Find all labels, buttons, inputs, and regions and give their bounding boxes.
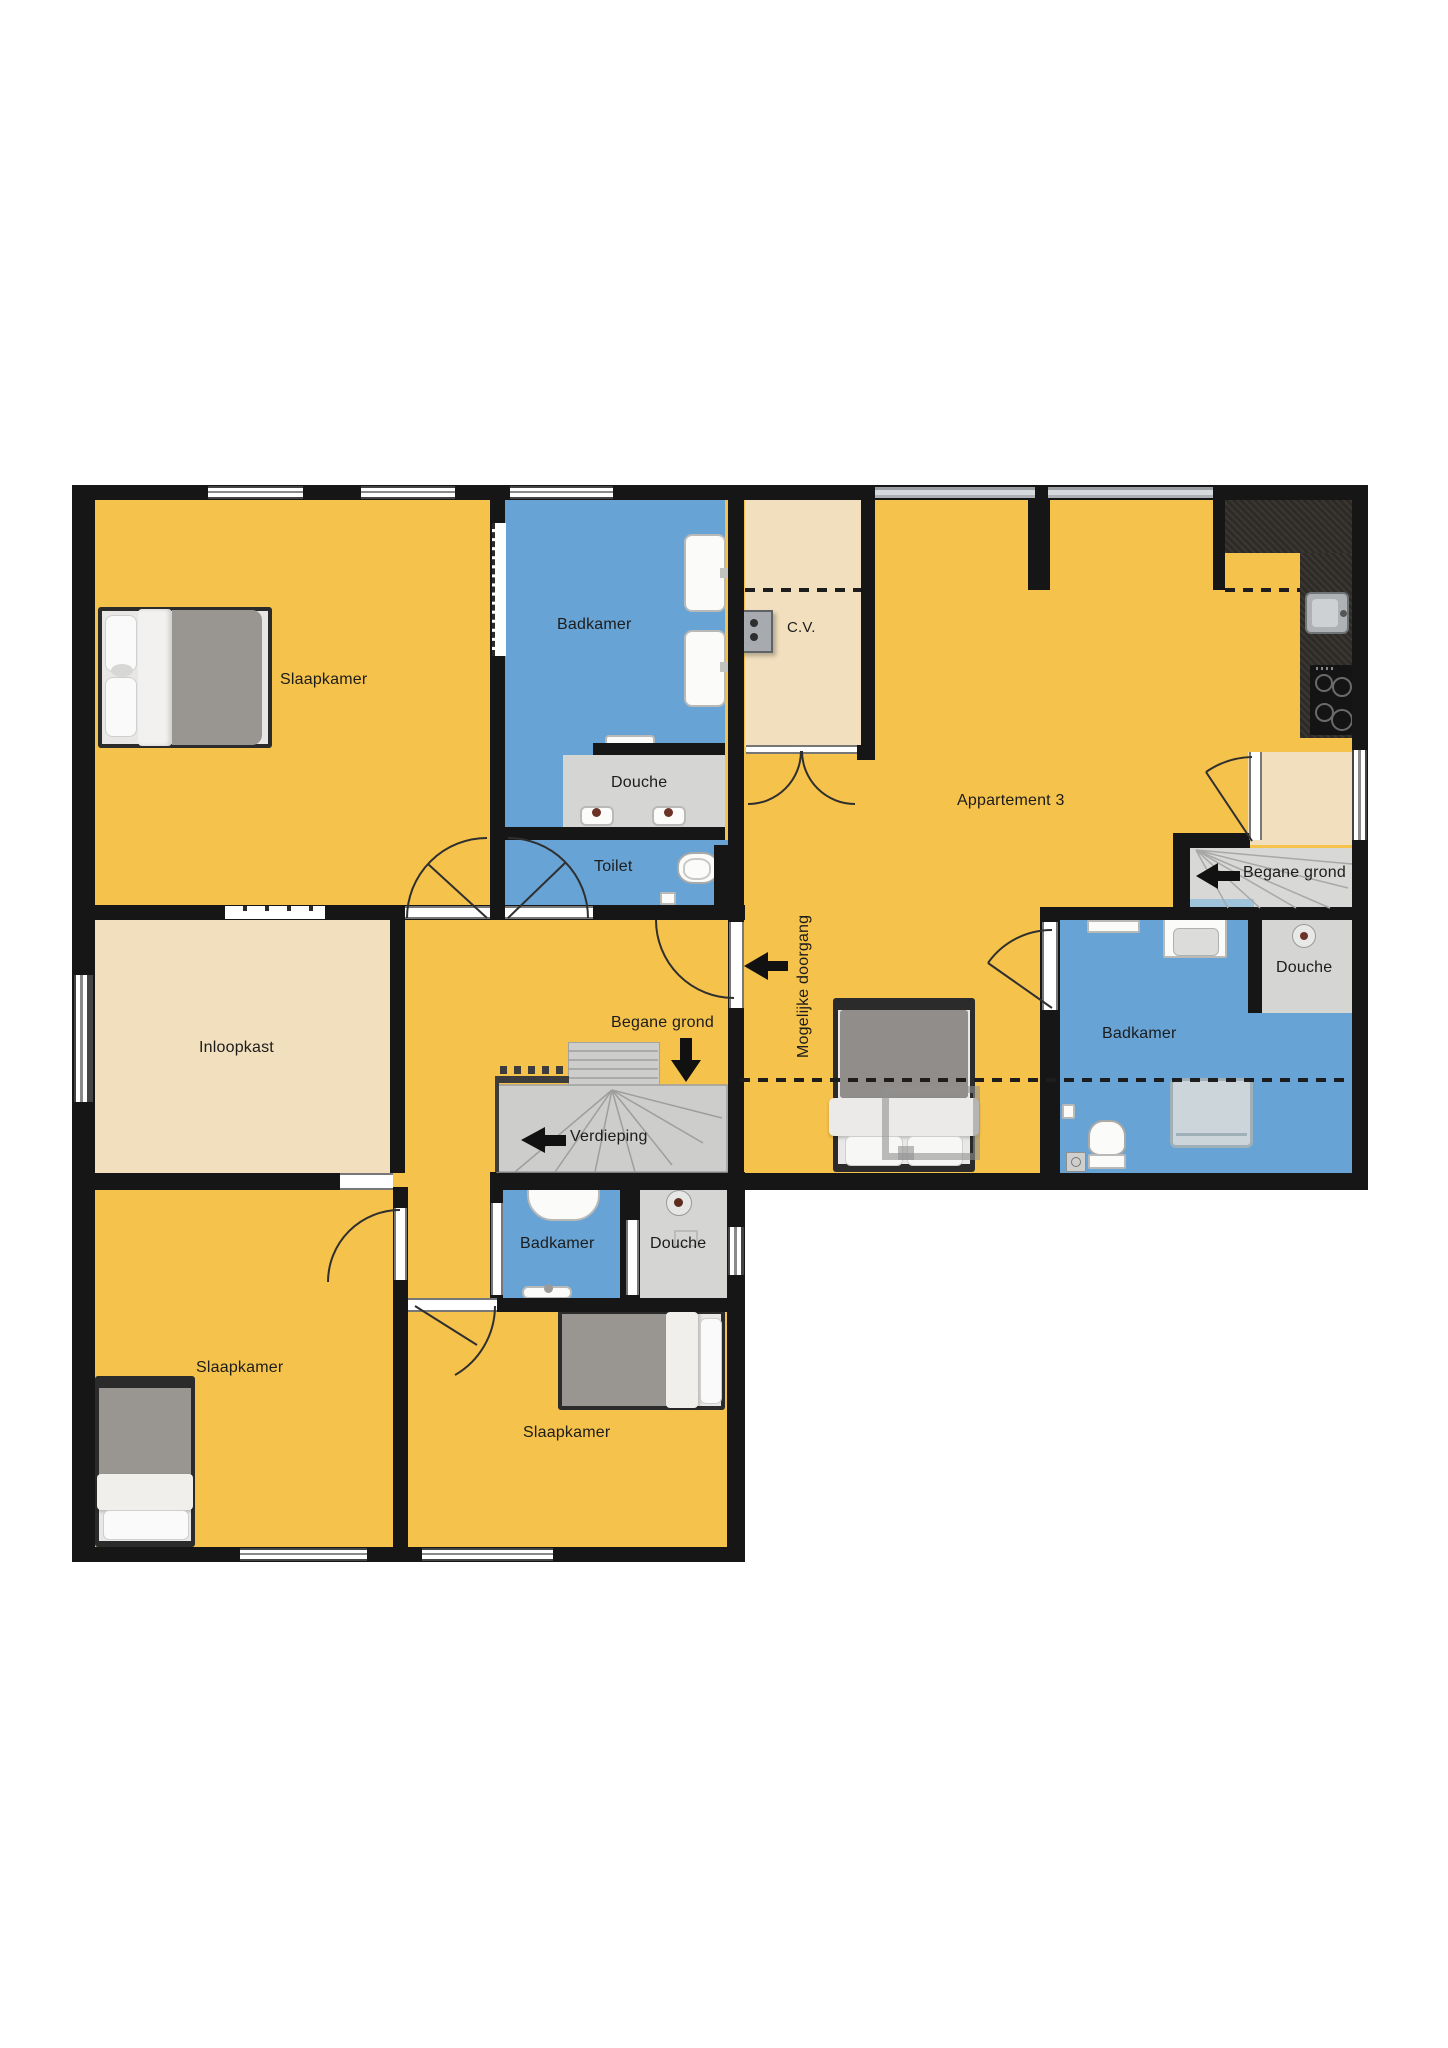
wall-cv-corner <box>857 745 875 760</box>
room-label-douche-right: Douche <box>1276 959 1332 977</box>
faucet-dot-right <box>664 808 673 817</box>
double-bed-topleft <box>98 607 272 748</box>
door-opening-badkamer-mid <box>491 1203 503 1295</box>
door-opening-bedroom-bottommiddle <box>408 1298 497 1312</box>
wall-badkamer-mid-bottom <box>497 1298 745 1312</box>
door-opening-bedroom <box>405 906 490 919</box>
single-bed-bottommiddle <box>558 1310 725 1410</box>
wall-bottom <box>72 1547 745 1562</box>
room-label-slaapkamer-bottommiddle: Slaapkamer <box>523 1424 610 1442</box>
wall-inloopkast-bottom <box>93 1173 340 1190</box>
room-label-badkamer-right: Badkamer <box>1102 1025 1177 1043</box>
toilet-paper-holder <box>1062 1104 1075 1119</box>
room-label-douche-middle: Douche <box>650 1235 706 1253</box>
wall-shelf <box>1087 920 1140 933</box>
opening-inloopkast-bedroom <box>340 1173 393 1190</box>
door-opening-badkamer-right <box>1042 922 1058 1010</box>
washing-machine <box>1163 918 1227 958</box>
room-label-douche-top: Douche <box>611 774 667 792</box>
single-bed-bottomleft <box>95 1376 195 1547</box>
wall-inloopkast-right <box>390 918 405 1173</box>
window-top-1 <box>208 486 303 499</box>
wall-stairs-right-side <box>1173 848 1190 908</box>
wall-badkamer-toilet <box>505 827 725 840</box>
door-opening-toilet <box>505 906 593 919</box>
toilet-tank-right <box>1088 1154 1126 1169</box>
shower-head-middle-icon <box>666 1190 692 1216</box>
door-landing-left <box>1249 752 1262 840</box>
room-label-appartement-3: Appartement 3 <box>957 792 1065 810</box>
room-divider-window <box>225 906 325 919</box>
faucet-dot-left <box>592 808 601 817</box>
door-opening-cv <box>746 745 857 754</box>
room-label-slaapkamer-topleft: Slaapkamer <box>280 671 367 689</box>
kitchen-sink <box>1305 592 1349 634</box>
window-left-inloopkast <box>74 975 93 1102</box>
wall-under-stairs <box>490 1172 745 1190</box>
shower-handle-2 <box>720 662 728 672</box>
wall-kitchen-pillar <box>1213 485 1225 590</box>
window-band-apartment-1 <box>875 487 1035 498</box>
window-landing-right <box>1352 750 1367 840</box>
double-bed-apartment <box>833 998 975 1172</box>
room-label-badkamer-middle: Badkamer <box>520 1235 595 1253</box>
bathtub-right <box>1170 1078 1253 1148</box>
door-opening-hall-apartment <box>729 922 744 1008</box>
room-label-badkamer-top: Badkamer <box>557 616 632 634</box>
wall-toilet-inset <box>714 845 728 905</box>
door-opening-douche-mid <box>626 1220 639 1295</box>
toilet-fixture <box>677 852 719 884</box>
wall-badkamer-douche-top <box>593 743 725 755</box>
possible-passage-label: Mogelijke doorgang <box>795 890 813 1058</box>
vanity-middle <box>527 1188 600 1221</box>
window-bottom-1 <box>240 1548 367 1561</box>
window-top-3 <box>510 486 613 499</box>
kitchen-counter-top <box>1225 500 1352 553</box>
room-label-inloopkast: Inloopkast <box>199 1039 274 1057</box>
window-bottom-2 <box>422 1548 553 1561</box>
cv-unit <box>740 610 773 653</box>
floor-drain <box>1066 1152 1086 1172</box>
wall-douche-right-left <box>1248 920 1262 1013</box>
room-label-slaapkamer-bottomleft: Slaapkamer <box>196 1359 283 1377</box>
wall-cv-right <box>861 485 875 757</box>
stairs-middle-down-label: Begane grond <box>611 1014 714 1032</box>
shower-head-right-icon <box>1292 924 1316 948</box>
window-east-douche <box>728 1227 744 1275</box>
room-label-toilet: Toilet <box>594 858 633 876</box>
wall-hall-apartment <box>728 500 744 1190</box>
window-band-apartment-2 <box>1048 487 1213 498</box>
wall-stairs-right-stub <box>1173 833 1250 848</box>
wall-apartment-pillar1 <box>1028 485 1050 590</box>
toilet-fixture-right <box>1088 1120 1126 1156</box>
stairs-middle-up-label: Verdieping <box>570 1128 648 1146</box>
room-landing <box>1248 752 1352 845</box>
stairs-middle-flight <box>568 1042 660 1089</box>
wall-badkamer-right-top <box>1040 907 1368 920</box>
room-label-cv: C.V. <box>787 619 816 636</box>
toilet-cistern <box>660 892 676 905</box>
floorplan-canvas: Slaapkamer Badkamer Douche Toilet C.V. A… <box>0 0 1448 2048</box>
sliding-door-badkamer-top <box>492 523 506 656</box>
door-opening-bedroom-bottomleft <box>394 1208 407 1280</box>
shower-handle-1 <box>720 568 728 578</box>
window-top-2 <box>361 486 455 499</box>
stairs-right-label: Begane grond <box>1243 864 1346 882</box>
kitchen-cooktop <box>1310 665 1352 735</box>
